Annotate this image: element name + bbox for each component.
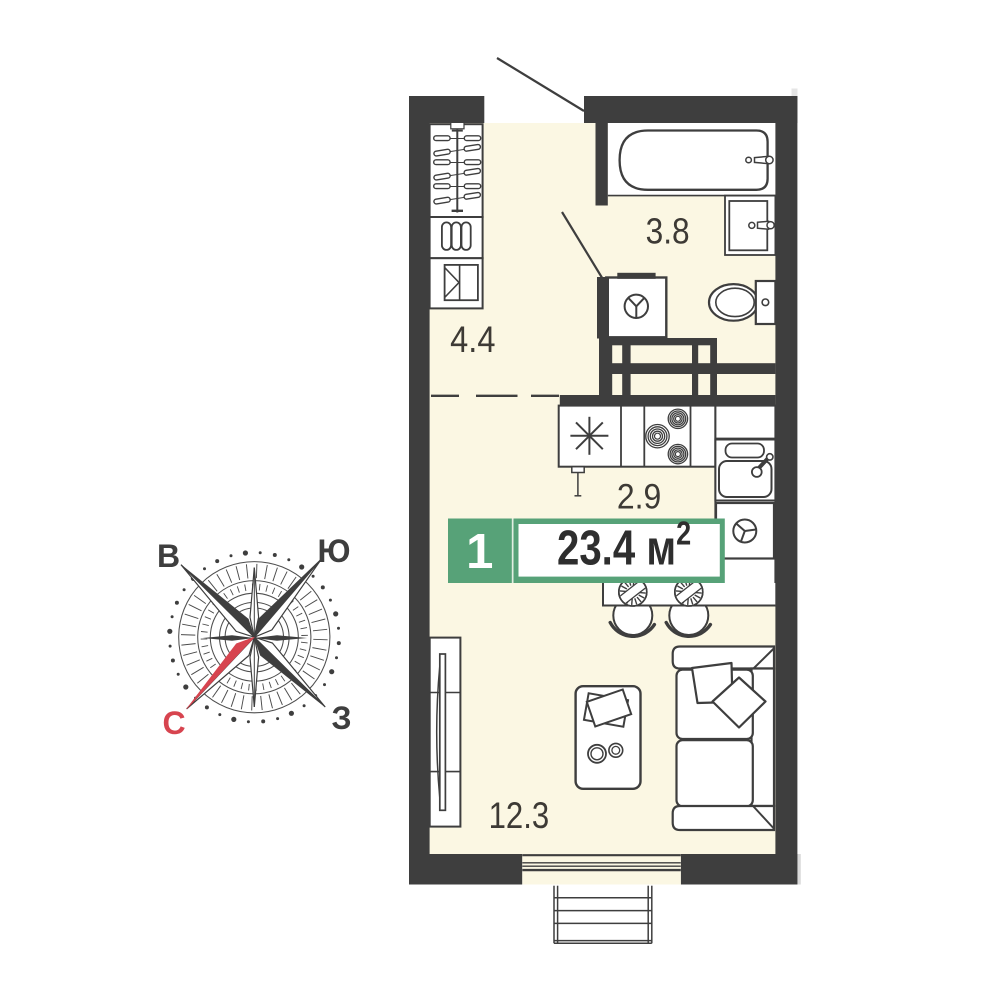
svg-text:С: С bbox=[162, 705, 185, 741]
svg-text:3.8: 3.8 bbox=[646, 212, 690, 252]
svg-text:23.4 м2: 23.4 м2 bbox=[557, 516, 691, 575]
svg-text:З: З bbox=[331, 700, 351, 736]
svg-text:12.3: 12.3 bbox=[489, 795, 550, 836]
svg-text:Ю: Ю bbox=[318, 533, 351, 569]
svg-text:2.9: 2.9 bbox=[617, 477, 661, 517]
svg-text:В: В bbox=[157, 538, 180, 574]
svg-text:1: 1 bbox=[466, 525, 493, 579]
svg-text:4.4: 4.4 bbox=[450, 319, 495, 360]
